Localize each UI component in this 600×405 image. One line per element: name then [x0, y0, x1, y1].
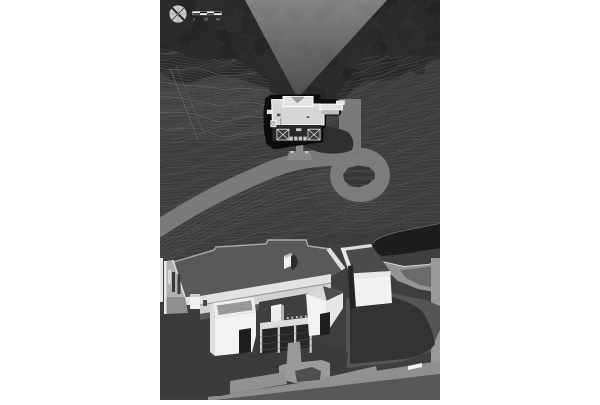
- svg-text:40: 40: [216, 18, 220, 22]
- svg-text:0: 0: [193, 18, 195, 22]
- svg-text:20: 20: [204, 18, 208, 22]
